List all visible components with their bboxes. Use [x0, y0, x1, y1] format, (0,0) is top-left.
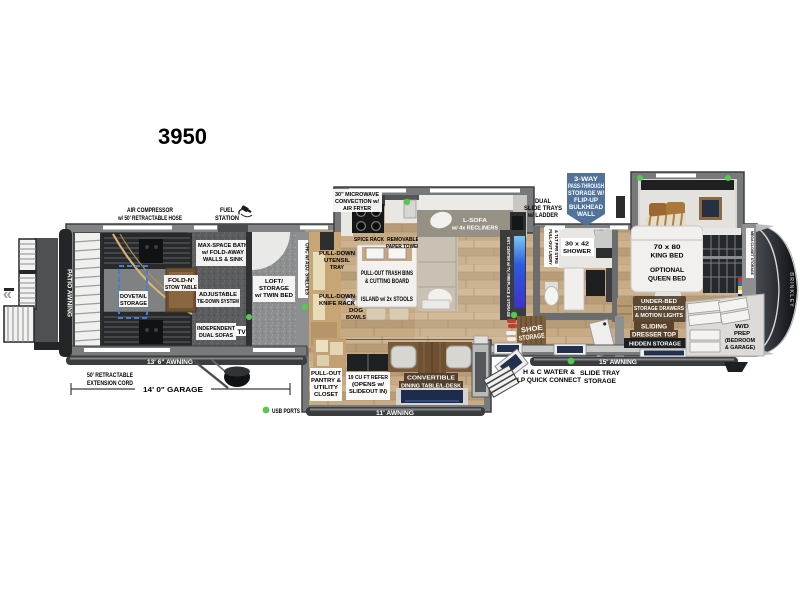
- svg-text:QUEEN BED: QUEEN BED: [648, 276, 686, 283]
- svg-text:PASS-THROUGH: PASS-THROUGH: [568, 184, 604, 190]
- svg-text:w/ FOLD-AWAY: w/ FOLD-AWAY: [201, 250, 244, 256]
- svg-text:UTENSIL: UTENSIL: [324, 258, 350, 264]
- svg-text:& CUTTING BOARD: & CUTTING BOARD: [365, 278, 409, 285]
- svg-text:AIR COMPRESSOR: AIR COMPRESSOR: [127, 207, 173, 214]
- svg-text:SLIDING: SLIDING: [641, 325, 667, 331]
- svg-text:AIR FRYER: AIR FRYER: [343, 206, 372, 212]
- svg-text:MEGA CLOSET STORAGE: MEGA CLOSET STORAGE: [750, 231, 755, 275]
- svg-text:SHOWER: SHOWER: [563, 249, 592, 255]
- svg-text:w/ LADDER: w/ LADDER: [527, 212, 558, 219]
- svg-text:30 x 42: 30 x 42: [565, 242, 590, 248]
- svg-text:BRINKLEY: BRINKLEY: [788, 272, 794, 308]
- svg-text:OPTIONAL: OPTIONAL: [650, 267, 684, 274]
- svg-text:30" MICROWAVE: 30" MICROWAVE: [335, 192, 379, 198]
- svg-text:ADJUSTABLE: ADJUSTABLE: [199, 292, 237, 298]
- svg-text:LOFT/: LOFT/: [265, 279, 283, 285]
- svg-text:HIDDEN STORAGE: HIDDEN STORAGE: [629, 342, 681, 348]
- svg-text:STORAGE W/: STORAGE W/: [568, 191, 604, 197]
- svg-text:STORAGE DRAWERS: STORAGE DRAWERS: [634, 306, 684, 312]
- svg-text:11' AWNING: 11' AWNING: [376, 410, 414, 417]
- svg-text:OHC w/ ADJ. SHELVES: OHC w/ ADJ. SHELVES: [304, 243, 310, 295]
- svg-text:TIE-DOWN SYSTEM: TIE-DOWN SYSTEM: [197, 299, 239, 305]
- svg-text:SPICE RACK: SPICE RACK: [354, 237, 385, 243]
- svg-text:50' RETRACTABLE: 50' RETRACTABLE: [87, 372, 133, 379]
- svg-text:DUAL SOFAS: DUAL SOFAS: [199, 333, 233, 339]
- svg-text:13' 6" AWNING: 13' 6" AWNING: [147, 359, 193, 366]
- svg-text:PULL-OUT LNDRY: PULL-OUT LNDRY: [548, 229, 553, 265]
- svg-text:LP QUICK CONNECT: LP QUICK CONNECT: [517, 377, 581, 384]
- svg-text:3950: 3950: [158, 124, 207, 149]
- svg-text:MAX-SPACE BATH: MAX-SPACE BATH: [198, 243, 248, 249]
- svg-text:FUEL: FUEL: [220, 207, 234, 214]
- svg-text:H & C WATER &: H & C WATER &: [523, 369, 576, 376]
- svg-text:w/ TWIN BED: w/ TWIN BED: [254, 293, 293, 299]
- svg-text:TRAY: TRAY: [330, 265, 344, 271]
- svg-text:DOG: DOG: [349, 308, 363, 314]
- svg-text:SLIDE TRAY: SLIDE TRAY: [580, 370, 620, 377]
- svg-text:PATIO AWNING: PATIO AWNING: [66, 269, 72, 317]
- svg-text:70 x 80: 70 x 80: [654, 244, 681, 251]
- svg-text:PAPER TOWEL: PAPER TOWEL: [386, 244, 420, 250]
- svg-text:ENT. CENTER w/ TV, FIREPLACE &: ENT. CENTER w/ TV, FIREPLACE & STORAGE: [505, 237, 511, 318]
- svg-text:REMOVABLE: REMOVABLE: [387, 237, 419, 243]
- svg-text:INDEPENDENT: INDEPENDENT: [197, 326, 235, 332]
- svg-text:PULL-OUT: PULL-OUT: [311, 371, 341, 377]
- svg-text:STORAGE: STORAGE: [584, 378, 616, 385]
- svg-text:USB PORTS: USB PORTS: [272, 408, 300, 415]
- svg-text:WALL: WALL: [577, 212, 595, 218]
- svg-text:14' 0" GARAGE: 14' 0" GARAGE: [143, 387, 203, 394]
- svg-text:FLIP-UP: FLIP-UP: [574, 198, 598, 204]
- svg-text:SLIDEOUT IN): SLIDEOUT IN): [349, 389, 387, 395]
- svg-text:3-WAY: 3-WAY: [574, 177, 598, 183]
- svg-text:(BEDROOM: (BEDROOM: [725, 338, 755, 344]
- svg-text:STORAGE: STORAGE: [259, 286, 289, 292]
- svg-text:DRESSER TOP: DRESSER TOP: [632, 333, 676, 339]
- svg-text:& GARAGE): & GARAGE): [725, 345, 755, 351]
- svg-text:STOW TABLE: STOW TABLE: [165, 285, 197, 291]
- svg-text:CONVECTION w/: CONVECTION w/: [335, 199, 379, 205]
- svg-text:KING BED: KING BED: [651, 253, 684, 260]
- svg-text:DOVETAIL: DOVETAIL: [120, 294, 147, 300]
- svg-text:W/D: W/D: [735, 324, 749, 330]
- svg-text:15' AWNING: 15' AWNING: [599, 359, 637, 366]
- svg-text:PREP: PREP: [734, 331, 750, 337]
- svg-text:BOWLS: BOWLS: [346, 315, 366, 321]
- svg-text:PULL-OUT TRASH BINS: PULL-OUT TRASH BINS: [361, 270, 413, 277]
- svg-text:UNDER-BED: UNDER-BED: [641, 299, 677, 305]
- svg-text:w/ 50' RETRACTABLE HOSE: w/ 50' RETRACTABLE HOSE: [117, 215, 182, 222]
- svg-text:BULKHEAD: BULKHEAD: [569, 205, 604, 211]
- svg-text:EXTENSION CORD: EXTENSION CORD: [87, 380, 133, 387]
- svg-text:TV: TV: [237, 329, 246, 336]
- svg-text:CONVERTIBLE: CONVERTIBLE: [407, 376, 455, 382]
- svg-text:STORAGE: STORAGE: [120, 301, 147, 307]
- svg-text:«: «: [3, 286, 12, 303]
- svg-text:& MOTION LIGHTS: & MOTION LIGHTS: [635, 313, 683, 319]
- svg-text:WALLS & SINK: WALLS & SINK: [203, 257, 244, 263]
- svg-text:PULL-DOWN: PULL-DOWN: [319, 251, 355, 257]
- svg-text:(OPENS w/: (OPENS w/: [352, 382, 384, 388]
- svg-text:L-SOFA: L-SOFA: [463, 218, 488, 224]
- svg-text:DUAL: DUAL: [535, 198, 551, 205]
- svg-text:19 CU FT REFER: 19 CU FT REFER: [348, 375, 389, 381]
- svg-text:UTILITY: UTILITY: [314, 385, 338, 391]
- svg-text:ISLAND w/ 2x STOOLS: ISLAND w/ 2x STOOLS: [361, 296, 413, 303]
- svg-text:w/ 4x RECLINERS: w/ 4x RECLINERS: [451, 226, 498, 232]
- svg-text:SLIDE TRAYS: SLIDE TRAYS: [524, 205, 562, 212]
- svg-text:& TLT PPR STRG: & TLT PPR STRG: [554, 230, 559, 265]
- svg-text:FOLD-N': FOLD-N': [168, 278, 195, 284]
- svg-text:KNIFE RACK: KNIFE RACK: [319, 301, 356, 307]
- svg-text:PANTRY &: PANTRY &: [311, 378, 342, 384]
- svg-text:STATION: STATION: [215, 215, 239, 222]
- svg-text:CLOSET: CLOSET: [314, 392, 338, 398]
- svg-text:PULL-DOWN: PULL-DOWN: [319, 294, 355, 300]
